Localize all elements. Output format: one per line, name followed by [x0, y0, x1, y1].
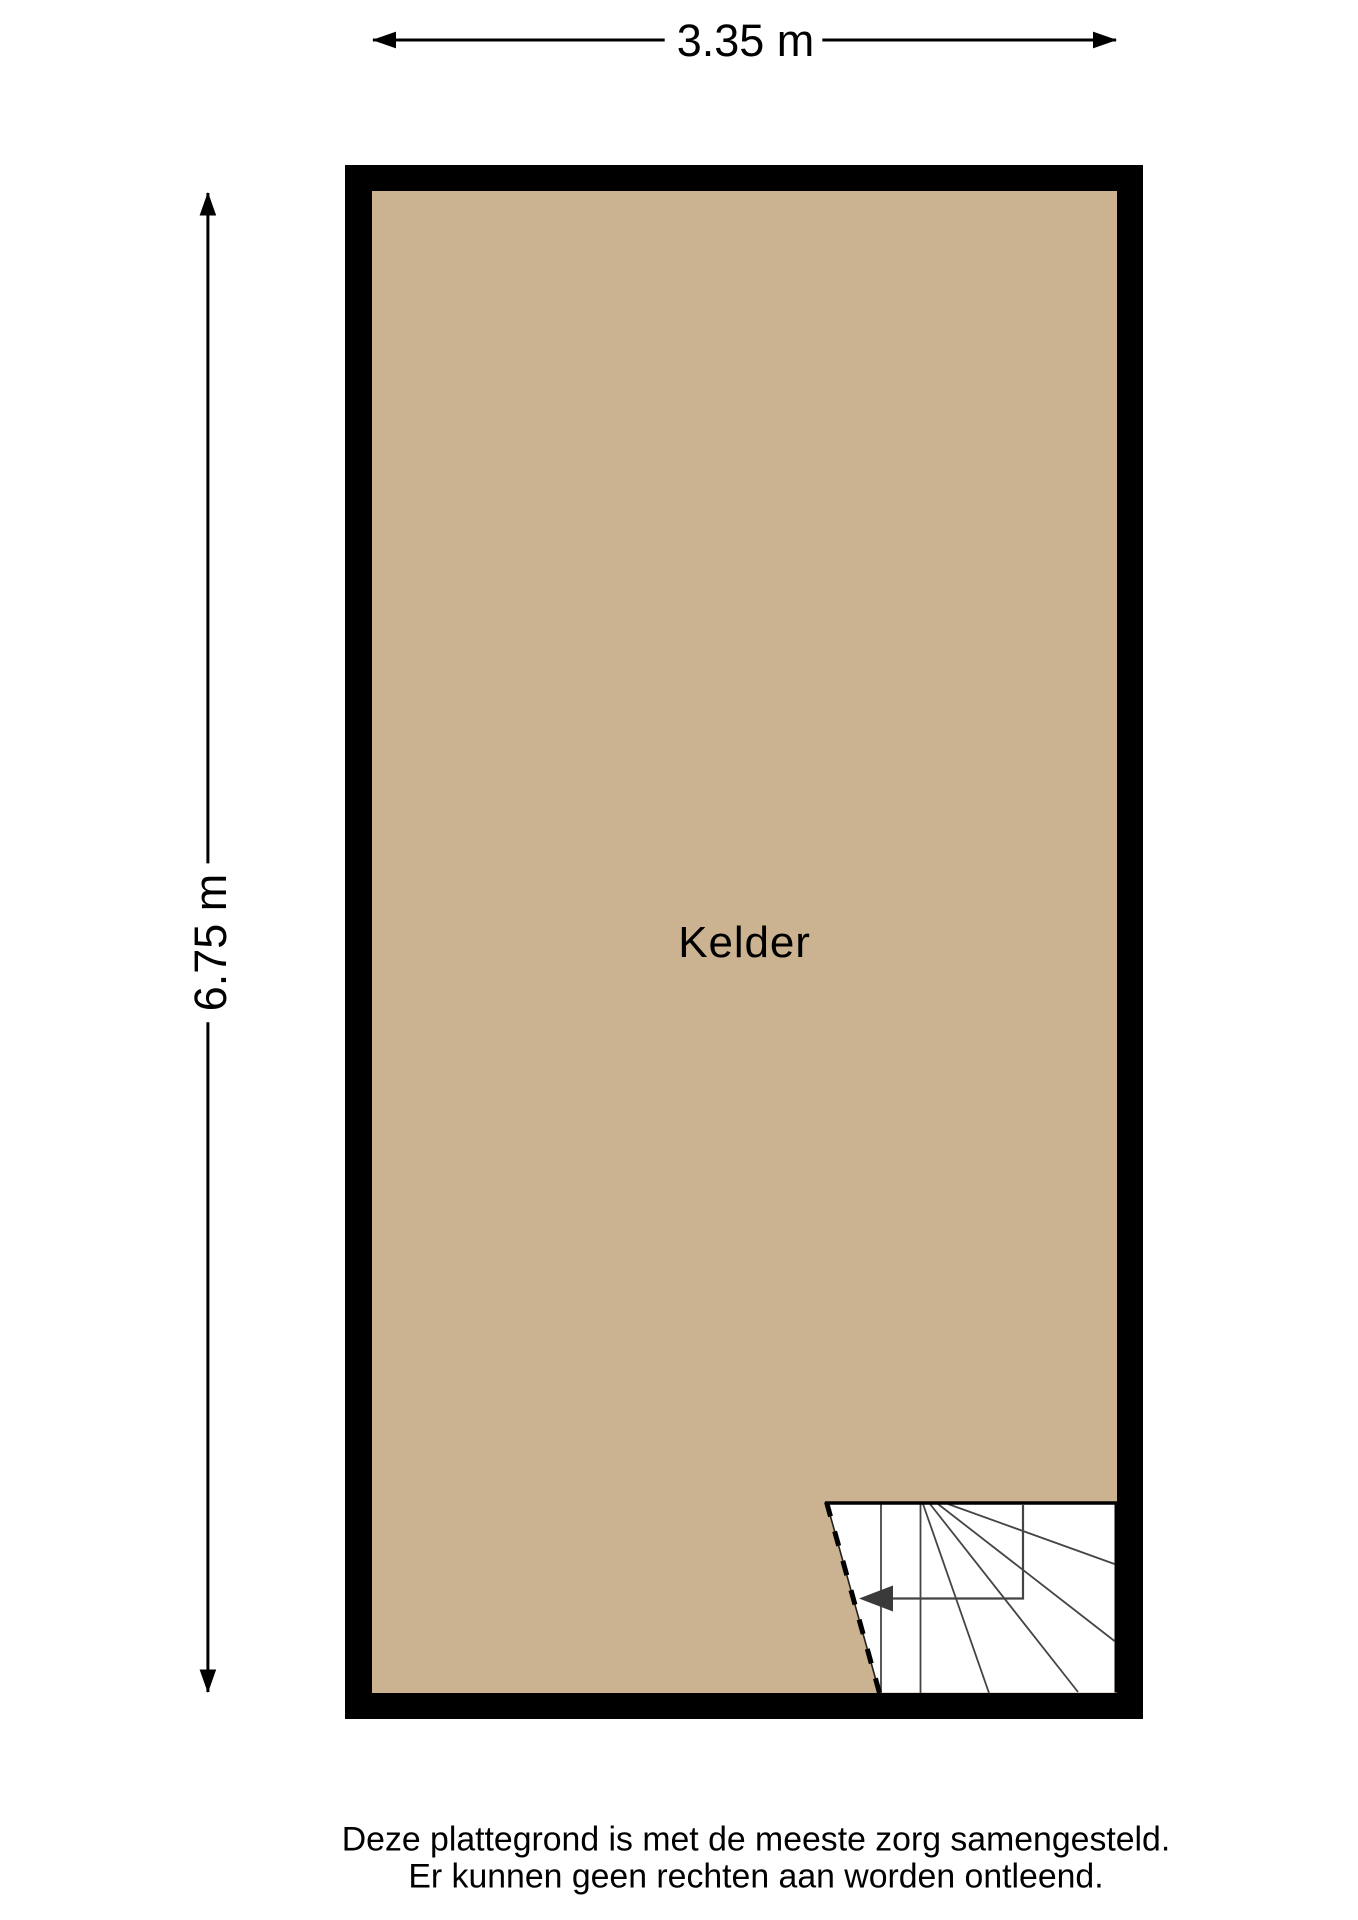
svg-text:Kelder: Kelder [678, 918, 811, 967]
svg-text:6.75 m: 6.75 m [185, 874, 236, 1012]
svg-text:3.35 m: 3.35 m [677, 15, 815, 66]
svg-text:Deze plattegrond is met de mee: Deze plattegrond is met de meeste zorg s… [342, 1821, 1170, 1859]
svg-text:Er kunnen geen rechten aan wor: Er kunnen geen rechten aan worden ontlee… [408, 1858, 1103, 1896]
